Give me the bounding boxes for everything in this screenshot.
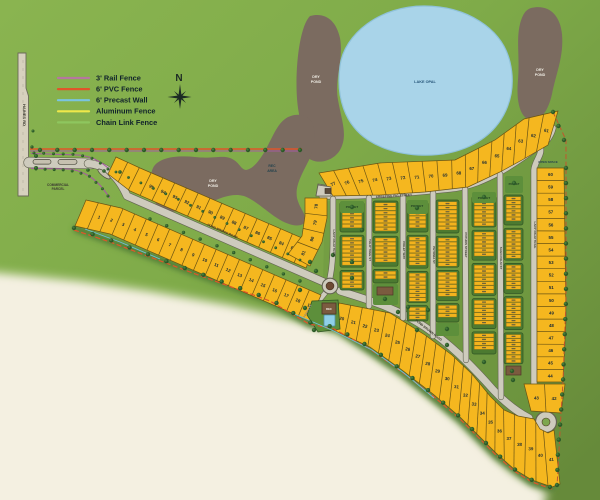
svg-text:REC: REC [268,164,276,168]
svg-text:57: 57 [548,210,553,215]
svg-text:45: 45 [548,361,553,366]
svg-text:Aluminum Fence: Aluminum Fence [96,107,156,116]
svg-text:LAKE OPAL: LAKE OPAL [414,80,436,84]
svg-text:DRY: DRY [536,68,544,72]
svg-text:69: 69 [442,172,448,177]
svg-text:38: 38 [517,442,523,447]
svg-text:HAINES RD: HAINES RD [22,104,27,126]
svg-text:35: 35 [488,420,494,425]
svg-text:LADY PALM TRAIL: LADY PALM TRAIL [533,222,537,249]
svg-text:46: 46 [548,348,553,353]
svg-text:58: 58 [548,197,553,202]
svg-text:DRY: DRY [312,75,320,79]
svg-text:VIOLET WAY: VIOLET WAY [402,241,406,259]
svg-text:67: 67 [469,166,474,171]
svg-text:PETUNIA ST: PETUNIA ST [432,246,436,264]
svg-text:52: 52 [549,273,554,278]
svg-text:AREA: AREA [267,169,277,173]
svg-text:63: 63 [518,138,524,143]
svg-text:LADY PALM TRAIL: LADY PALM TRAIL [332,230,336,257]
svg-text:OPEN SPACE: OPEN SPACE [538,160,557,164]
svg-text:Chain Link Fence: Chain Link Fence [96,118,157,127]
svg-text:48: 48 [549,323,554,328]
svg-text:36: 36 [497,428,502,433]
svg-text:6' PVC Fence: 6' PVC Fence [96,85,143,94]
svg-text:POND: POND [311,80,322,84]
svg-text:N: N [175,73,182,84]
svg-text:34: 34 [480,411,486,416]
svg-text:51: 51 [549,285,554,290]
svg-text:60: 60 [548,172,553,177]
svg-text:REC: REC [326,307,332,311]
svg-text:DRY: DRY [209,179,217,183]
svg-text:47: 47 [549,336,554,341]
svg-text:SAGO PALM ST: SAGO PALM ST [499,247,503,270]
svg-text:POND: POND [208,184,219,188]
svg-text:TULIP TREE ST: TULIP TREE ST [368,239,372,261]
svg-text:66: 66 [482,160,488,165]
svg-text:54: 54 [549,247,554,252]
svg-text:64: 64 [506,146,512,151]
svg-text:37: 37 [507,436,512,441]
svg-text:POTHOS STREET: POTHOS STREET [464,232,468,258]
svg-text:42: 42 [552,396,557,401]
svg-text:65: 65 [494,153,500,158]
svg-text:40: 40 [538,453,544,458]
svg-text:56: 56 [548,222,553,227]
svg-text:3' Rail Fence: 3' Rail Fence [96,73,141,82]
svg-text:43: 43 [534,395,539,400]
svg-text:68: 68 [456,171,461,176]
svg-text:59: 59 [548,185,553,190]
svg-text:53: 53 [549,260,554,265]
svg-text:49: 49 [549,310,554,315]
svg-text:50: 50 [549,298,554,303]
svg-text:44: 44 [548,373,553,378]
svg-text:6' Precast Wall: 6' Precast Wall [96,96,148,105]
svg-text:39: 39 [528,446,534,451]
svg-text:POND: POND [535,73,546,77]
svg-text:78: 78 [313,203,318,209]
svg-text:55: 55 [549,235,554,240]
svg-text:33: 33 [471,401,477,406]
svg-text:PARCEL: PARCEL [52,187,65,191]
